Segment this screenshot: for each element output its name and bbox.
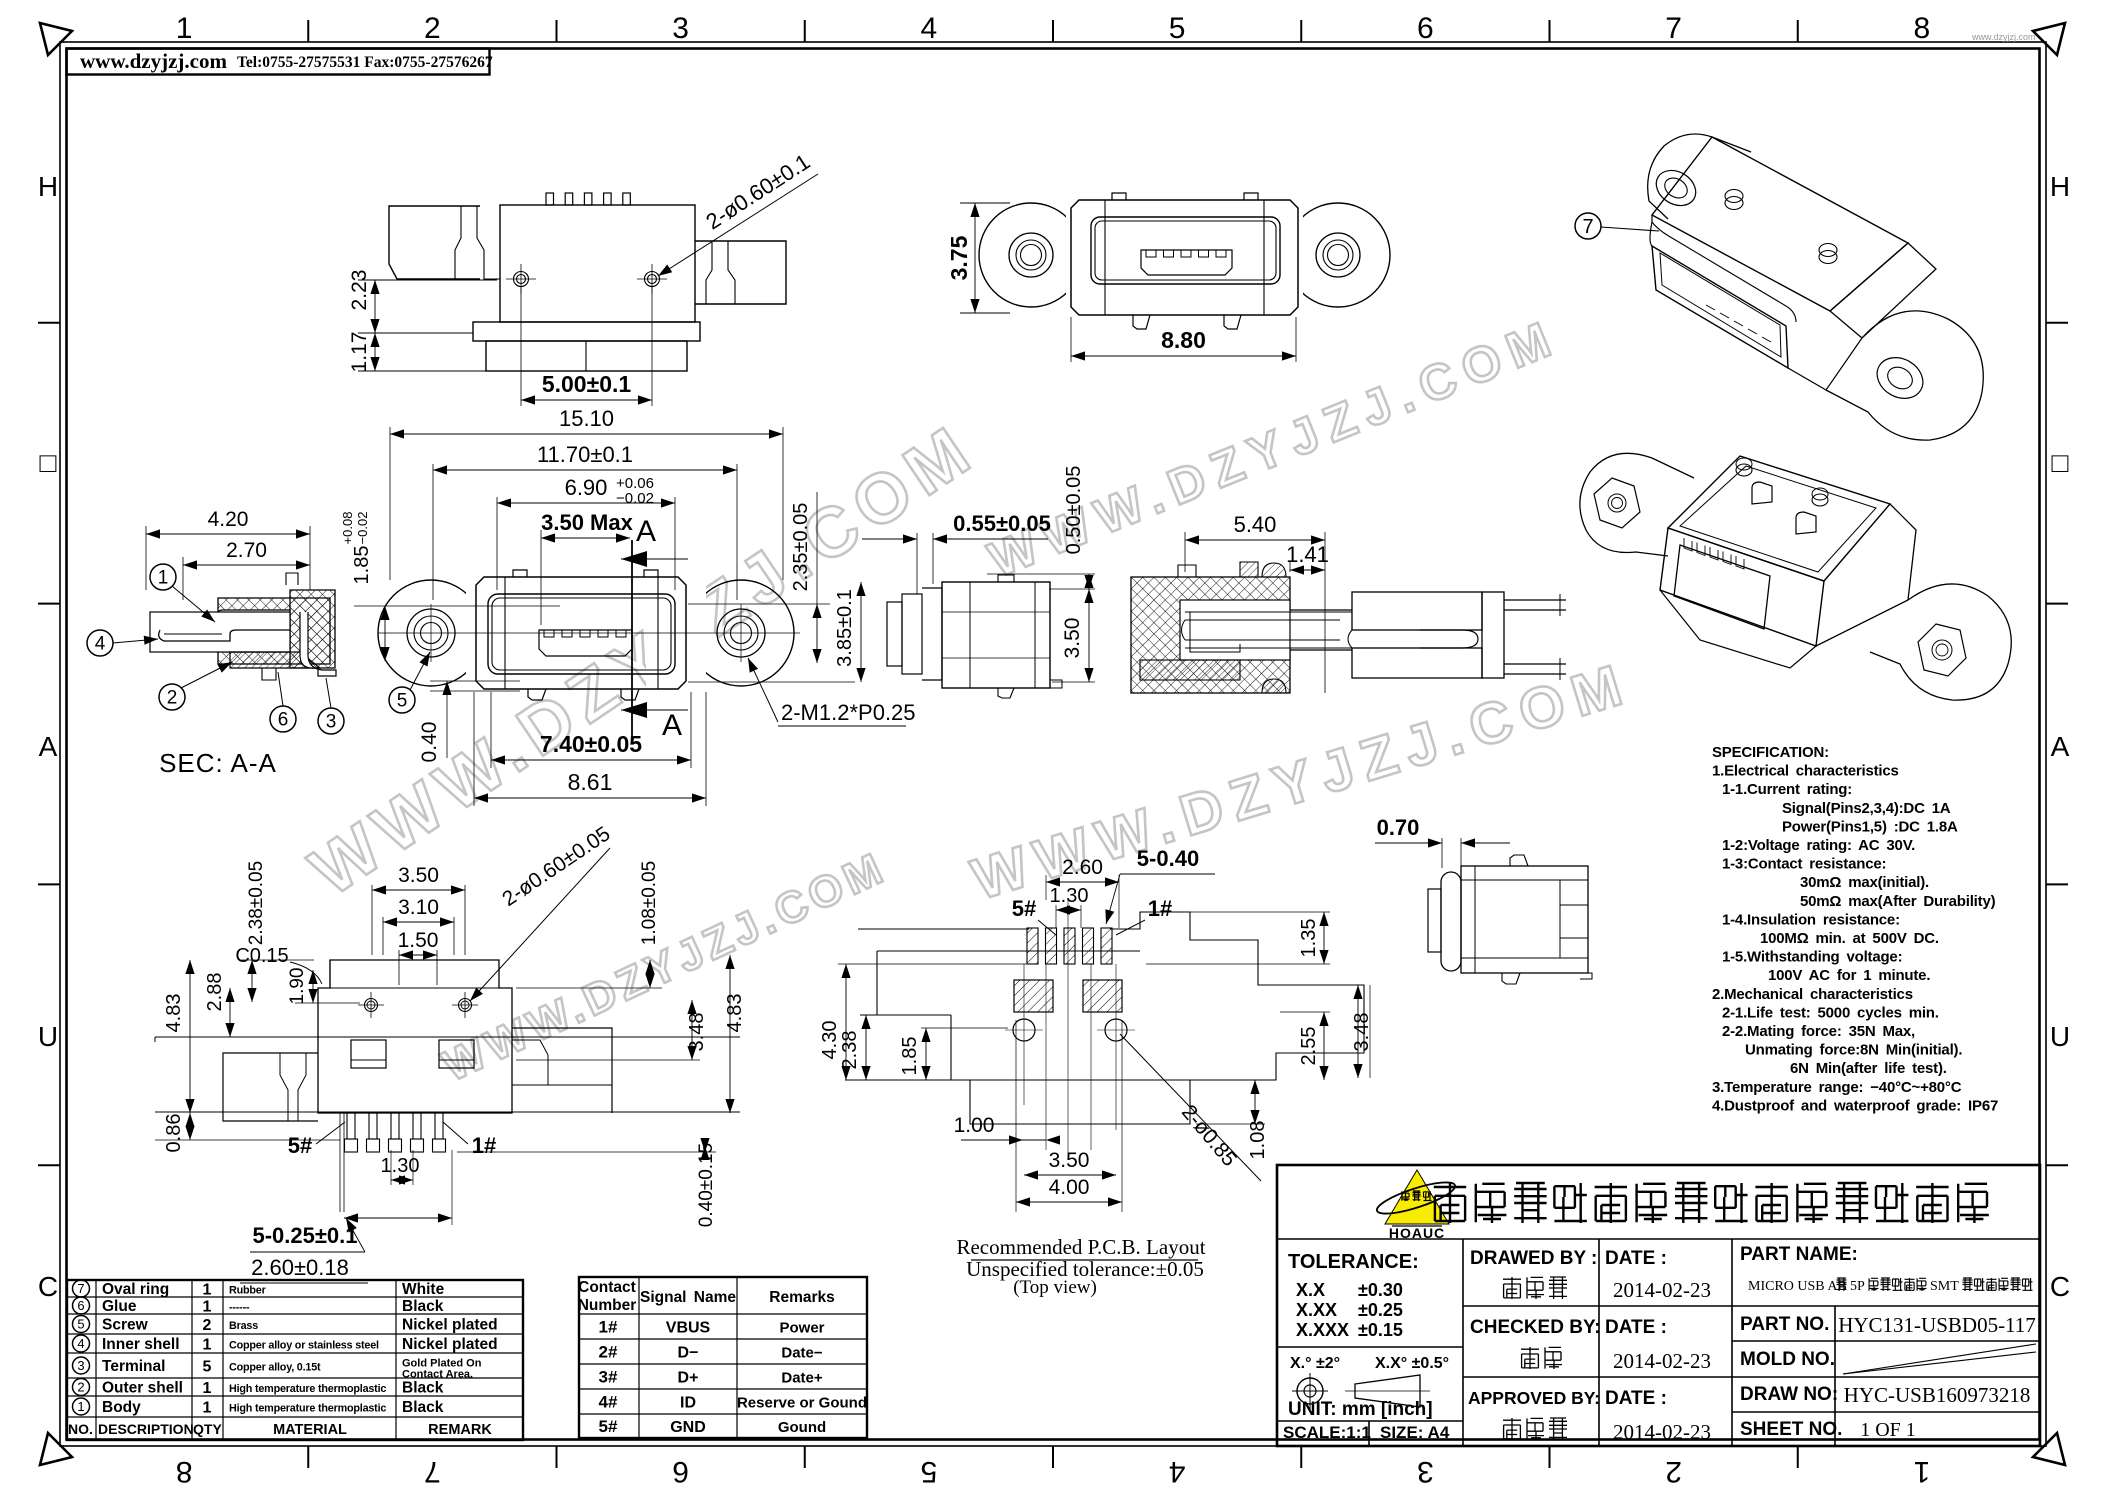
svg-text:QTY: QTY [193,1421,222,1437]
svg-text:SHEET NO.: SHEET NO. [1740,1419,1842,1440]
svg-text:1: 1 [1914,1455,1931,1488]
svg-text:1.17: 1.17 [348,332,371,373]
svg-text:APPROVED BY:: APPROVED BY: [1468,1388,1600,1408]
svg-text:TOLERANCE:: TOLERANCE: [1288,1251,1419,1273]
svg-text:Copper alloy or stainless: Copper alloy or stainless steel [229,1340,379,1352]
svg-text:2#: 2# [599,1343,618,1362]
svg-text:□: □ [2052,447,2069,478]
svg-text:2.38: 2.38 [839,1031,861,1070]
svg-text:2-1.Life test: 5000 cycles min: 2-1.Life test: 5000 cycles min. [1722,1004,1939,1021]
svg-text:SPECIFICATION:: SPECIFICATION: [1712,744,1829,761]
svg-text:GND: GND [670,1419,706,1436]
svg-text:4: 4 [77,1336,84,1351]
svg-text:2: 2 [77,1380,84,1395]
svg-text:1.30: 1.30 [1050,885,1089,907]
svg-text:DRAWED BY :: DRAWED BY : [1470,1248,1597,1269]
svg-text:HOAUC: HOAUC [1389,1225,1445,1241]
svg-text:High temperature thermoplast: High temperature thermoplastic [229,1383,386,1395]
svg-text:0.70: 0.70 [1377,815,1420,840]
svg-text:2014-02-23: 2014-02-23 [1613,1420,1711,1444]
svg-text:Black: Black [402,1298,444,1315]
svg-text:(Top view): (Top view) [1013,1277,1097,1298]
svg-text:1.30: 1.30 [381,1155,420,1177]
svg-text:6: 6 [77,1298,84,1313]
svg-text:8: 8 [1914,12,1931,45]
svg-text:3: 3 [77,1358,84,1373]
svg-text:30mΩ max(initial).: 30mΩ max(initial). [1800,874,1929,891]
svg-text:7: 7 [424,1455,441,1488]
svg-text:DATE :: DATE : [1605,1388,1667,1409]
svg-text:Number: Number [578,1297,637,1314]
svg-text:□: □ [40,447,57,478]
svg-text:2014-02-23: 2014-02-23 [1613,1349,1711,1373]
svg-text:Gound: Gound [778,1419,826,1436]
svg-text:1.41: 1.41 [1286,542,1329,567]
svg-text:PART NO.: PART NO. [1740,1314,1829,1335]
svg-text:4: 4 [921,12,938,45]
svg-text:Brass: Brass [229,1320,258,1332]
svg-text:Black: Black [402,1399,444,1416]
svg-text:3.48: 3.48 [686,1013,708,1052]
svg-text:D+: D+ [678,1370,699,1387]
svg-text:1: 1 [158,568,169,589]
svg-text:0.86: 0.86 [163,1114,185,1153]
svg-text:Copper alloy, 0.15t: Copper alloy, 0.15t [229,1362,321,1374]
svg-text:HYC131-USBD05-117: HYC131-USBD05-117 [1838,1313,2036,1337]
svg-text:4.83: 4.83 [163,994,185,1033]
svg-text:1.90: 1.90 [287,968,308,1005]
svg-text:−0.02: −0.02 [355,512,370,545]
svg-text:1.00: 1.00 [954,1114,995,1137]
svg-text:Power(Pins1,5) :DC 1.8A: Power(Pins1,5) :DC 1.8A [1782,818,1958,835]
svg-text:C0.15: C0.15 [235,945,288,967]
svg-text:3.85±0.1: 3.85±0.1 [834,589,856,667]
svg-text:3#: 3# [599,1368,618,1387]
svg-text:1#: 1# [472,1133,496,1158]
svg-text:Date−: Date− [781,1345,823,1362]
svg-text:1-5.Withstanding voltage:: 1-5.Withstanding voltage: [1722,949,1902,966]
svg-text:Outer shell: Outer shell [102,1380,183,1397]
svg-text:MICRO USB AB: MICRO USB AB [1748,1279,1847,1294]
svg-text:4: 4 [95,634,106,655]
svg-text:Black: Black [402,1380,444,1397]
svg-text:MATERIAL: MATERIAL [273,1422,347,1438]
svg-text:2: 2 [1665,1455,1682,1488]
svg-text:4.30: 4.30 [819,1021,841,1060]
svg-text:7: 7 [77,1281,84,1296]
svg-text:5: 5 [397,691,408,712]
svg-text:X.X° ±0.5°: X.X° ±0.5° [1375,1355,1449,1372]
svg-text:Power: Power [779,1320,824,1337]
svg-text:4.00: 4.00 [1049,1176,1090,1199]
svg-text:White: White [402,1281,445,1298]
svg-text:8.80: 8.80 [1161,327,1206,353]
svg-text:Reserve or Gound: Reserve or Gound [737,1395,867,1412]
svg-text:3.Temperature range: −40°C~+80: 3.Temperature range: −40°C~+80°C [1712,1079,1962,1096]
svg-text:5#: 5# [1012,896,1036,921]
svg-text:1: 1 [203,1282,212,1299]
svg-text:±0.25: ±0.25 [1358,1300,1403,1320]
svg-text:U: U [38,1021,58,1052]
svg-text:A: A [2051,731,2070,762]
svg-text:Recommended P.C.B. Layout: Recommended P.C.B. Layout [956,1235,1205,1259]
svg-text:1.85: 1.85 [351,546,373,585]
svg-text:100MΩ min. at 500V DC.: 100MΩ min. at 500V DC. [1760,930,1939,947]
svg-text:5.40: 5.40 [1234,512,1277,537]
svg-text:D−: D− [678,1345,699,1362]
svg-text:7.40±0.05: 7.40±0.05 [540,731,642,757]
svg-text:DATE :: DATE : [1605,1248,1667,1269]
svg-text:−0.02: −0.02 [616,490,654,507]
svg-text:5#: 5# [599,1417,618,1436]
svg-text:6N Min(after life test).: 6N Min(after life test). [1790,1060,1947,1077]
svg-text:8: 8 [176,1455,193,1488]
svg-text:1.35: 1.35 [1298,919,1320,958]
svg-text:2.70: 2.70 [226,539,267,562]
svg-text:1-2:Voltage rating: AC 30V.: 1-2:Voltage rating: AC 30V. [1722,837,1915,854]
svg-text:1-1.Current rating:: 1-1.Current rating: [1722,781,1852,798]
svg-text:1-3:Contact resistance:: 1-3:Contact resistance: [1722,856,1886,873]
svg-text:1: 1 [203,1380,212,1397]
svg-text:7: 7 [1665,12,1682,45]
svg-text:3.75: 3.75 [946,235,972,280]
svg-text:C: C [38,1271,58,1302]
svg-text:0.55±0.05: 0.55±0.05 [953,511,1051,536]
svg-text:3.50: 3.50 [1061,618,1084,659]
svg-text:1.08: 1.08 [1247,1121,1269,1160]
svg-text:SIZE: A4: SIZE: A4 [1380,1423,1450,1442]
svg-text:2: 2 [424,12,441,45]
svg-text:±0.30: ±0.30 [1358,1280,1403,1300]
svg-text:6: 6 [672,1455,689,1488]
svg-text:1: 1 [77,1399,84,1414]
svg-text:A: A [39,731,58,762]
svg-text:0.50±0.05: 0.50±0.05 [1063,466,1085,555]
svg-text:1 OF 1: 1 OF 1 [1860,1419,1916,1441]
svg-text:5-0.25±0.1: 5-0.25±0.1 [252,1223,357,1248]
svg-text:DATE :: DATE : [1605,1317,1667,1338]
svg-text:X.° ±2°: X.° ±2° [1290,1355,1340,1372]
svg-text:1: 1 [203,1337,212,1354]
svg-text:5.00±0.1: 5.00±0.1 [542,371,632,397]
svg-text:SEC: A-A: SEC: A-A [159,748,277,778]
svg-text:Inner shell: Inner shell [102,1336,180,1353]
svg-text:Nickel plated: Nickel plated [402,1317,498,1334]
svg-text:5: 5 [1169,12,1186,45]
svg-text:www.dzyjzj.com: www.dzyjzj.com [80,49,227,73]
svg-text:HYC-USB160973218: HYC-USB160973218 [1844,1383,2031,1407]
svg-text:Terminal: Terminal [102,1358,165,1375]
svg-text:A: A [662,709,682,742]
svg-text:1-4.Insulation resistance:: 1-4.Insulation resistance: [1722,911,1900,928]
svg-text:Tel:0755-27575531 Fax:0755-27: Tel:0755-27575531 Fax:0755-27576267 [237,54,493,71]
svg-text:U: U [2050,1021,2070,1052]
svg-text:6.90: 6.90 [565,475,608,500]
svg-text:1.50: 1.50 [398,929,439,952]
svg-text:2-2.Mating force: 35N Max,: 2-2.Mating force: 35N Max, [1722,1023,1915,1040]
svg-text:Nickel plated: Nickel plated [402,1336,498,1353]
svg-text:2.60: 2.60 [1062,856,1103,879]
svg-text:Signal(Pins2,3,4):DC 1A: Signal(Pins2,3,4):DC 1A [1782,800,1951,817]
svg-text:4: 4 [1169,1455,1186,1488]
svg-text:CHECKED BY:: CHECKED BY: [1470,1317,1601,1338]
svg-text:8.61: 8.61 [568,769,613,795]
svg-text:4.Dustproof and waterproof gra: 4.Dustproof and waterproof grade: IP67 [1712,1097,1998,1114]
svg-text:VBUS: VBUS [666,1320,711,1337]
svg-text:Body: Body [102,1399,141,1416]
svg-text:PART NAME:: PART NAME: [1740,1244,1858,1265]
svg-text:UNIT: mm [inch]: UNIT: mm [inch] [1288,1399,1433,1420]
svg-text:1.08±0.05: 1.08±0.05 [639,861,660,945]
svg-text:DRAW NO:: DRAW NO: [1740,1384,1838,1405]
svg-text:5P: 5P [1850,1279,1865,1294]
svg-text:1#: 1# [1148,896,1172,921]
svg-text:1.85: 1.85 [899,1037,921,1076]
svg-text:50mΩ max(After Durability): 50mΩ max(After Durability) [1800,893,1996,910]
svg-text:3.48: 3.48 [1351,1013,1373,1052]
svg-text:+0.08: +0.08 [340,512,355,545]
svg-text:5: 5 [921,1455,938,1488]
svg-text:3.10: 3.10 [398,896,439,919]
svg-text:5: 5 [203,1359,212,1376]
svg-text:REMARK: REMARK [428,1422,492,1438]
svg-text:2.35±0.05: 2.35±0.05 [790,503,812,592]
svg-text:4#: 4# [599,1393,618,1412]
svg-text:www.dzyjzj.com: www.dzyjzj.com [1971,32,2036,42]
svg-text:2.88: 2.88 [204,973,226,1012]
svg-text:A: A [636,515,656,548]
svg-text:MOLD NO.: MOLD NO. [1740,1349,1835,1370]
svg-text:------: ------ [229,1302,250,1314]
svg-text:Date+: Date+ [781,1370,823,1387]
svg-text:H: H [38,171,58,202]
svg-text:3: 3 [672,12,689,45]
svg-text:X.X: X.X [1296,1280,1325,1300]
svg-text:3.50: 3.50 [398,864,439,887]
svg-text:Contact: Contact [578,1279,636,1296]
svg-text:5-0.40: 5-0.40 [1137,846,1199,871]
svg-text:2: 2 [203,1317,212,1334]
svg-text:SMT: SMT [1930,1279,1959,1294]
svg-text:High temperature thermoplast: High temperature thermoplastic [229,1403,386,1415]
svg-text:3.50: 3.50 [1049,1149,1090,1172]
svg-text:0.40±0.15: 0.40±0.15 [696,1143,717,1227]
svg-text:4.83: 4.83 [724,994,746,1033]
svg-text:2.55: 2.55 [1298,1027,1320,1066]
svg-text:ID: ID [680,1395,696,1412]
svg-text:1: 1 [203,1299,212,1316]
svg-text:Glue: Glue [102,1298,137,1315]
svg-text:2.38±0.05: 2.38±0.05 [246,861,267,945]
svg-text:2: 2 [167,688,178,709]
svg-text:1#: 1# [599,1318,618,1337]
svg-text:5: 5 [77,1317,84,1332]
svg-text:C: C [2050,1271,2070,1302]
svg-text:H: H [2050,171,2070,202]
svg-text:3.50 Max: 3.50 Max [541,510,633,535]
svg-text:Signal Name: Signal Name [640,1289,736,1306]
svg-text:X.XX: X.XX [1296,1300,1337,1320]
svg-text:2.60±0.18: 2.60±0.18 [251,1255,349,1280]
svg-text:5#: 5# [288,1133,312,1158]
svg-text:1: 1 [203,1400,212,1417]
svg-text:100V AC for 1 minute.: 100V AC for 1 minute. [1768,967,1930,984]
svg-text:6: 6 [278,710,289,731]
svg-text:Oval ring: Oval ring [102,1281,169,1298]
svg-text:1: 1 [176,12,193,45]
svg-text:11.70±0.1: 11.70±0.1 [537,442,633,467]
svg-text:2.Mechanical characteristics: 2.Mechanical characteristics [1712,986,1913,1003]
svg-text:3: 3 [1417,1455,1434,1488]
svg-text:15.10: 15.10 [559,406,614,431]
svg-text:2014-02-23: 2014-02-23 [1613,1278,1711,1302]
svg-text:Rubber: Rubber [229,1285,267,1297]
svg-text:SCALE:1:1: SCALE:1:1 [1283,1423,1371,1442]
svg-text:NO.: NO. [68,1421,93,1437]
svg-text:±0.15: ±0.15 [1358,1320,1403,1340]
svg-text:X.XXX: X.XXX [1296,1320,1349,1340]
svg-text:7: 7 [1582,216,1593,238]
svg-text:Remarks: Remarks [769,1289,835,1306]
svg-text:0.40: 0.40 [418,722,441,763]
svg-text:1.Electrical characteristics: 1.Electrical characteristics [1712,763,1899,780]
svg-text:2-M1.2*P0.25: 2-M1.2*P0.25 [781,700,916,725]
svg-text:Unmating force:8N Min(initial): Unmating force:8N Min(initial). [1745,1042,1962,1059]
svg-text:3: 3 [326,712,337,733]
svg-text:6: 6 [1417,12,1434,45]
svg-text:DESCRIPTION: DESCRIPTION [98,1421,194,1437]
svg-text:Screw: Screw [102,1317,149,1334]
svg-text:2.23: 2.23 [348,270,371,311]
svg-text:4.20: 4.20 [208,508,249,531]
